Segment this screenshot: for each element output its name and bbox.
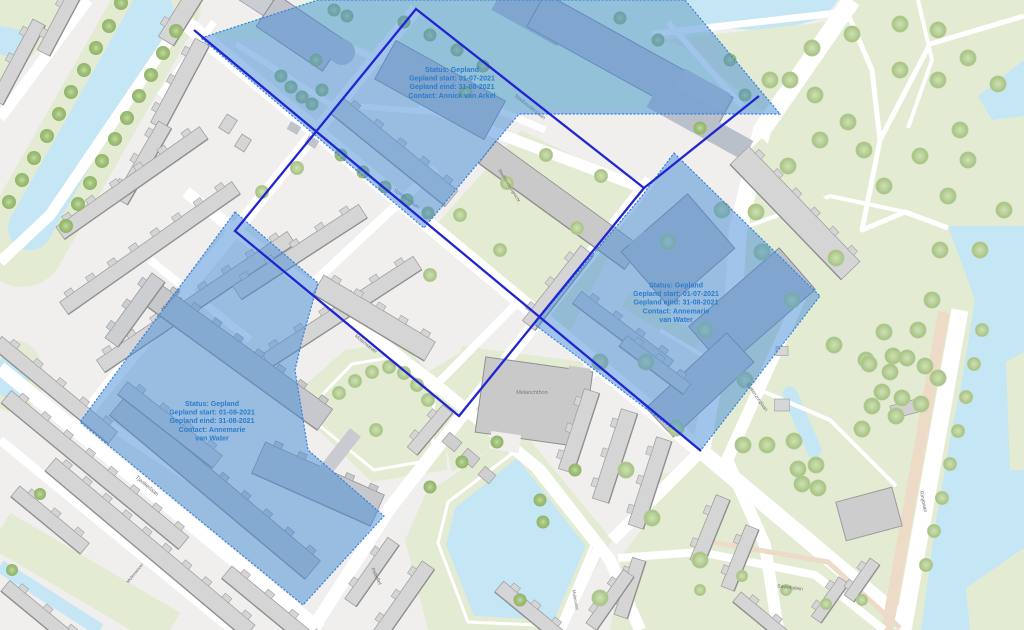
svg-text:Melanchthon: Melanchthon (516, 390, 548, 396)
